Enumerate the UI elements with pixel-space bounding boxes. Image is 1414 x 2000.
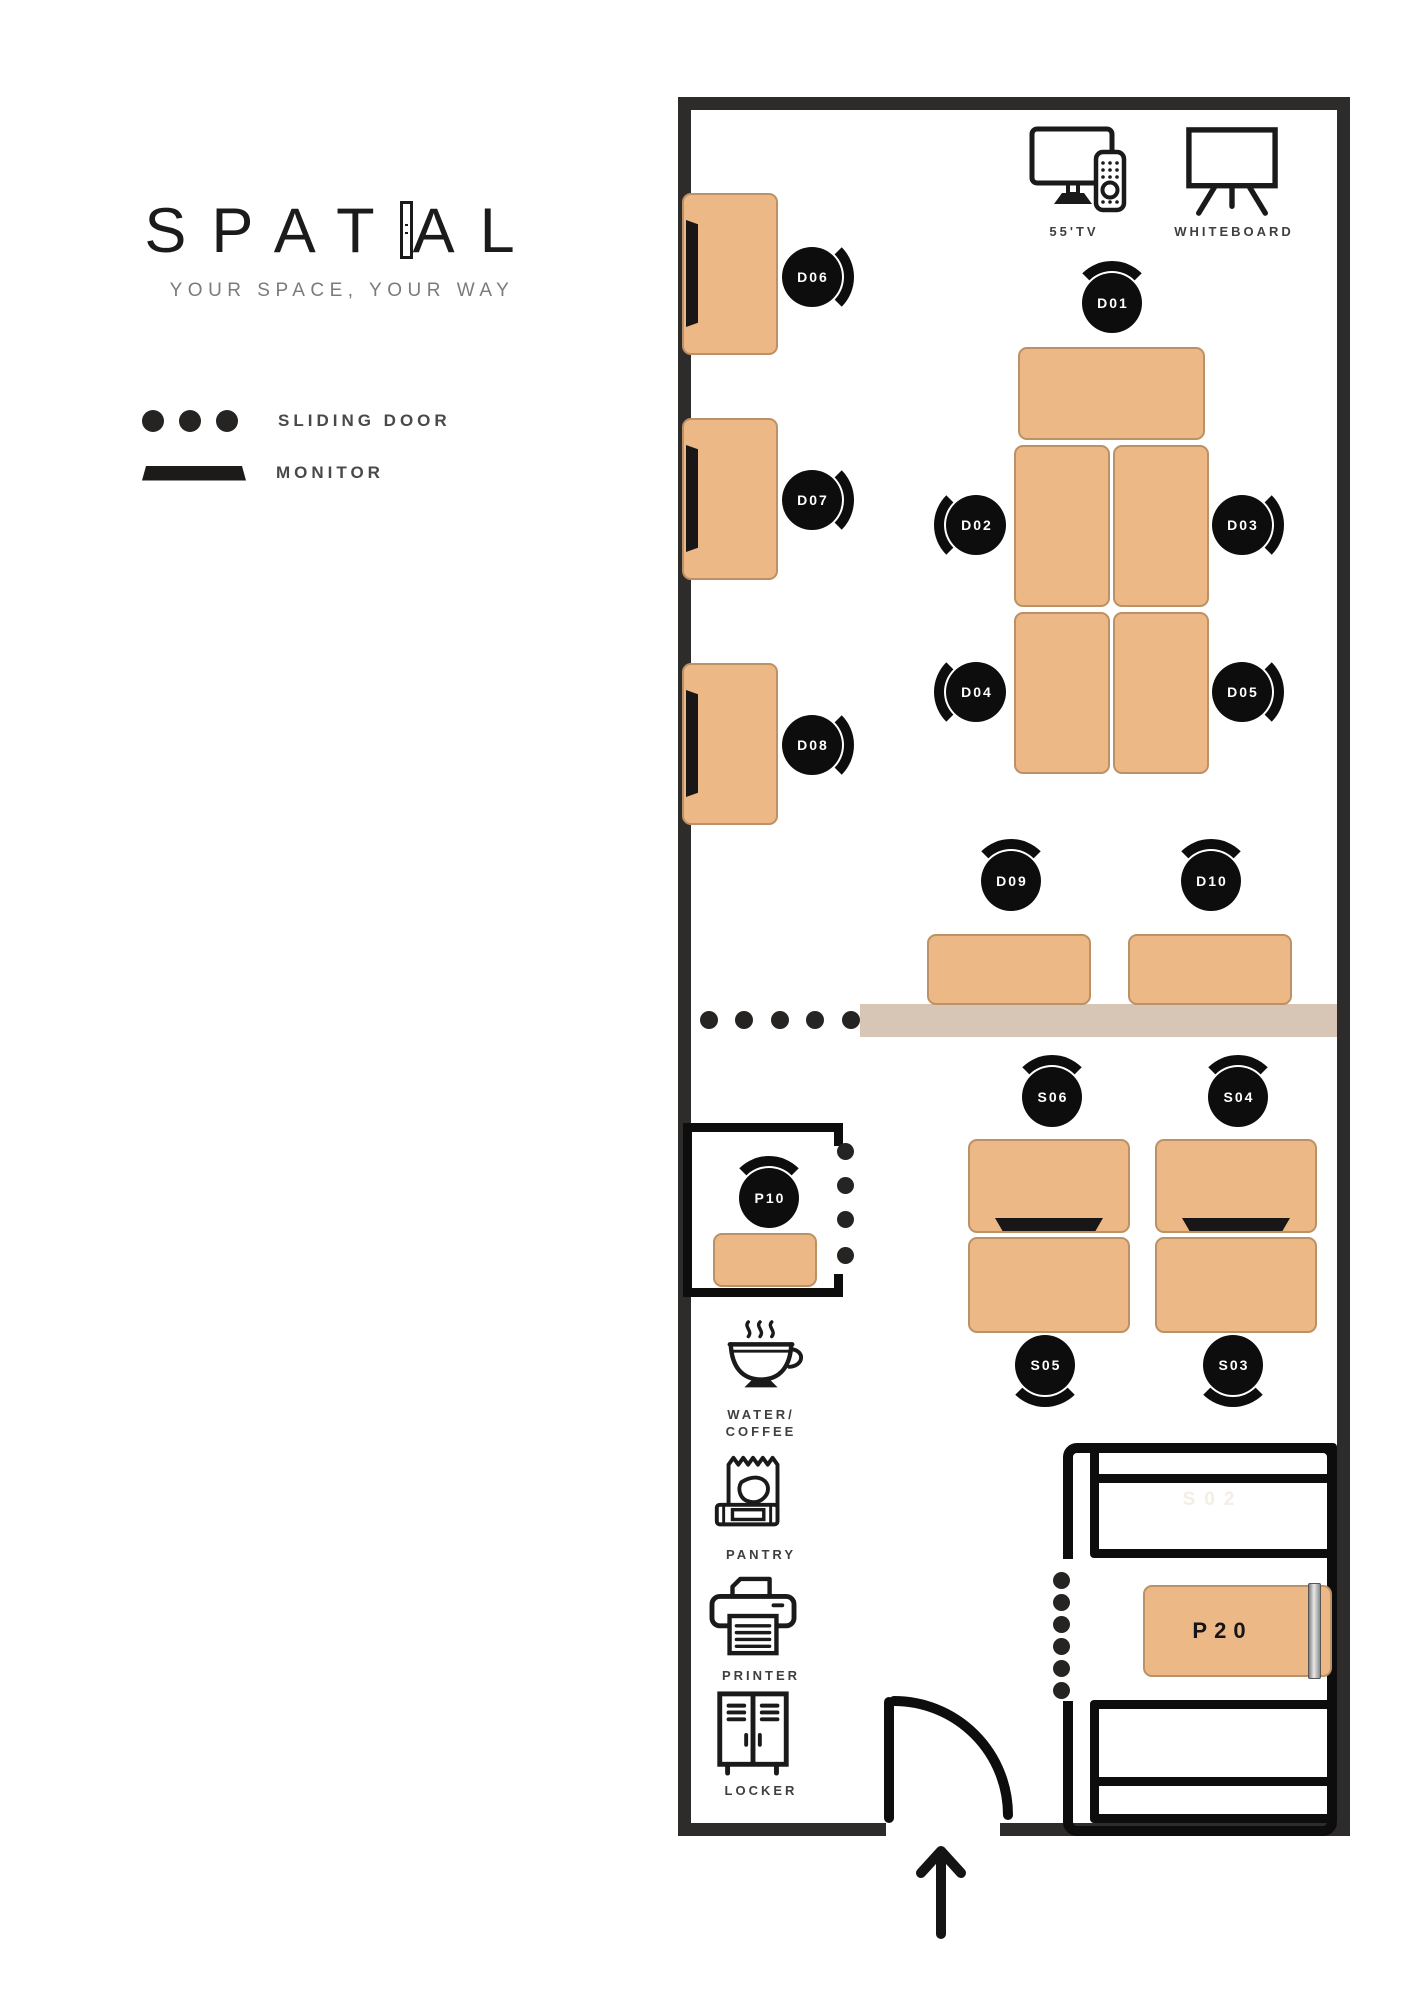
sliding-door-dot (1053, 1572, 1070, 1589)
seat-d09-label: D09 (996, 873, 1028, 889)
monitor-p20 (1308, 1583, 1321, 1679)
seat-d10[interactable]: D10 (1181, 851, 1241, 911)
desk-d05[interactable] (1113, 612, 1209, 774)
tv-icon (1028, 122, 1134, 216)
seat-s05[interactable]: S05 (1015, 1335, 1075, 1395)
counter-divider (860, 1004, 1337, 1037)
seat-d03[interactable]: D03 (1212, 495, 1272, 555)
seat-p10-label: P10 (755, 1190, 786, 1206)
seat-d06-label: D06 (797, 269, 829, 285)
locker-icon (713, 1689, 793, 1777)
legend-monitor-row: MONITOR (142, 460, 451, 486)
sliding-door-dot (700, 1011, 718, 1029)
wall-right (1337, 97, 1350, 1836)
seat-d06[interactable]: D06 (782, 247, 842, 307)
sliding-door-dot (1053, 1638, 1070, 1655)
room-s02-bottom-table-line (1090, 1777, 1337, 1786)
seat-p10[interactable]: P10 (739, 1168, 799, 1228)
sliding-door-dot (837, 1177, 854, 1194)
legend: SLIDING DOOR MONITOR (142, 408, 451, 512)
tagline: YOUR SPACE, YOUR WAY (92, 280, 592, 302)
seat-d10-label: D10 (1196, 873, 1228, 889)
sliding-door-dot (842, 1011, 860, 1029)
booth-wall-top (683, 1123, 843, 1132)
sliding-door-icon (142, 410, 248, 432)
desk-p10[interactable] (713, 1233, 817, 1287)
monitor-s06 (995, 1218, 1103, 1231)
seat-d01-label: D01 (1097, 295, 1129, 311)
monitor-strip-d08 (686, 690, 698, 797)
seat-d09[interactable]: D09 (981, 851, 1041, 911)
printer-label: PRINTER (722, 1668, 800, 1683)
seat-d07-label: D07 (797, 492, 829, 508)
seat-d08-label: D08 (797, 737, 829, 753)
water-coffee-icon (716, 1319, 808, 1401)
desk-d04[interactable] (1014, 612, 1110, 774)
pantry-label: PANTRY (726, 1547, 796, 1562)
desk-d09[interactable] (927, 934, 1091, 1005)
seat-d07[interactable]: D07 (782, 470, 842, 530)
logo-stylized-i-icon (400, 201, 413, 259)
monitor-strip-d06 (686, 220, 698, 327)
entrance-arrow (912, 1842, 972, 1942)
entrance-door-swing (878, 1692, 1018, 1832)
brand-block: SPATAL YOUR SPACE, YOUR WAY (92, 196, 592, 302)
room-s02-top-table-line (1090, 1474, 1337, 1483)
monitor-strip-d07 (686, 445, 698, 552)
sliding-door-dot (1053, 1616, 1070, 1633)
sliding-door-dot (837, 1247, 854, 1264)
sliding-door-dot (837, 1211, 854, 1228)
sliding-door-dot (1053, 1660, 1070, 1677)
wall-left (678, 97, 691, 1836)
seat-d04[interactable]: D04 (946, 662, 1006, 722)
floor-plan: 55'TV WHITEBOARD D06 D07 D08 D01 (678, 97, 1350, 1836)
seat-d01[interactable]: D01 (1082, 273, 1142, 333)
booth-wall-left (683, 1123, 692, 1297)
seat-s06-label: S06 (1038, 1089, 1069, 1105)
printer-icon (706, 1575, 800, 1659)
booth-wall-stub-bottom (834, 1274, 843, 1297)
floor-plan-page: SPATAL YOUR SPACE, YOUR WAY SLIDING DOOR… (0, 0, 1414, 2000)
seat-d04-label: D04 (961, 684, 993, 700)
seat-s05-label: S05 (1031, 1357, 1062, 1373)
seat-s03[interactable]: S03 (1203, 1335, 1263, 1395)
sliding-door-dot (1053, 1682, 1070, 1699)
seat-s04[interactable]: S04 (1208, 1067, 1268, 1127)
sliding-door-dot (771, 1011, 789, 1029)
sliding-door-dot (1053, 1594, 1070, 1611)
sliding-door-dot (837, 1143, 854, 1160)
logo: SPATAL (92, 196, 592, 266)
monitor-icon (142, 466, 246, 481)
water-label-line1: WATER/ (727, 1407, 795, 1422)
whiteboard-icon (1183, 125, 1281, 219)
tv-label: 55'TV (1049, 224, 1098, 239)
seat-s03-label: S03 (1219, 1357, 1250, 1373)
logo-part1: SPAT (144, 196, 399, 266)
desk-p20[interactable]: P20 (1143, 1585, 1332, 1677)
sliding-door-dot (735, 1011, 753, 1029)
desk-d10[interactable] (1128, 934, 1292, 1005)
monitor-s04 (1182, 1218, 1290, 1231)
locker-label: LOCKER (725, 1783, 798, 1798)
seat-d05[interactable]: D05 (1212, 662, 1272, 722)
whiteboard-label: WHITEBOARD (1174, 224, 1294, 239)
desk-s03[interactable] (1155, 1237, 1317, 1333)
seat-s04-label: S04 (1224, 1089, 1255, 1105)
desk-d03[interactable] (1113, 445, 1209, 607)
seat-d03-label: D03 (1227, 517, 1259, 533)
seat-d08[interactable]: D08 (782, 715, 842, 775)
pantry-icon (710, 1449, 798, 1541)
seat-d02[interactable]: D02 (946, 495, 1006, 555)
legend-monitor-label: MONITOR (276, 463, 384, 483)
wall-top (678, 97, 1350, 110)
seat-d05-label: D05 (1227, 684, 1259, 700)
room-s02-bottom-table (1090, 1700, 1337, 1823)
logo-part2: AL (413, 196, 540, 266)
seat-p20-label: P20 (1145, 1587, 1330, 1675)
legend-sliding-door-label: SLIDING DOOR (278, 411, 451, 431)
desk-d02[interactable] (1014, 445, 1110, 607)
desk-d01[interactable] (1018, 347, 1205, 440)
water-label-line2: COFFEE (726, 1424, 797, 1439)
desk-s05[interactable] (968, 1237, 1130, 1333)
booth-wall-bottom (683, 1288, 843, 1297)
room-label-s02: S02 (1133, 1489, 1293, 1511)
legend-sliding-door-row: SLIDING DOOR (142, 408, 451, 434)
wall-bottom-left (678, 1823, 886, 1836)
sliding-door-dot (806, 1011, 824, 1029)
seat-d02-label: D02 (961, 517, 993, 533)
seat-s06[interactable]: S06 (1022, 1067, 1082, 1127)
